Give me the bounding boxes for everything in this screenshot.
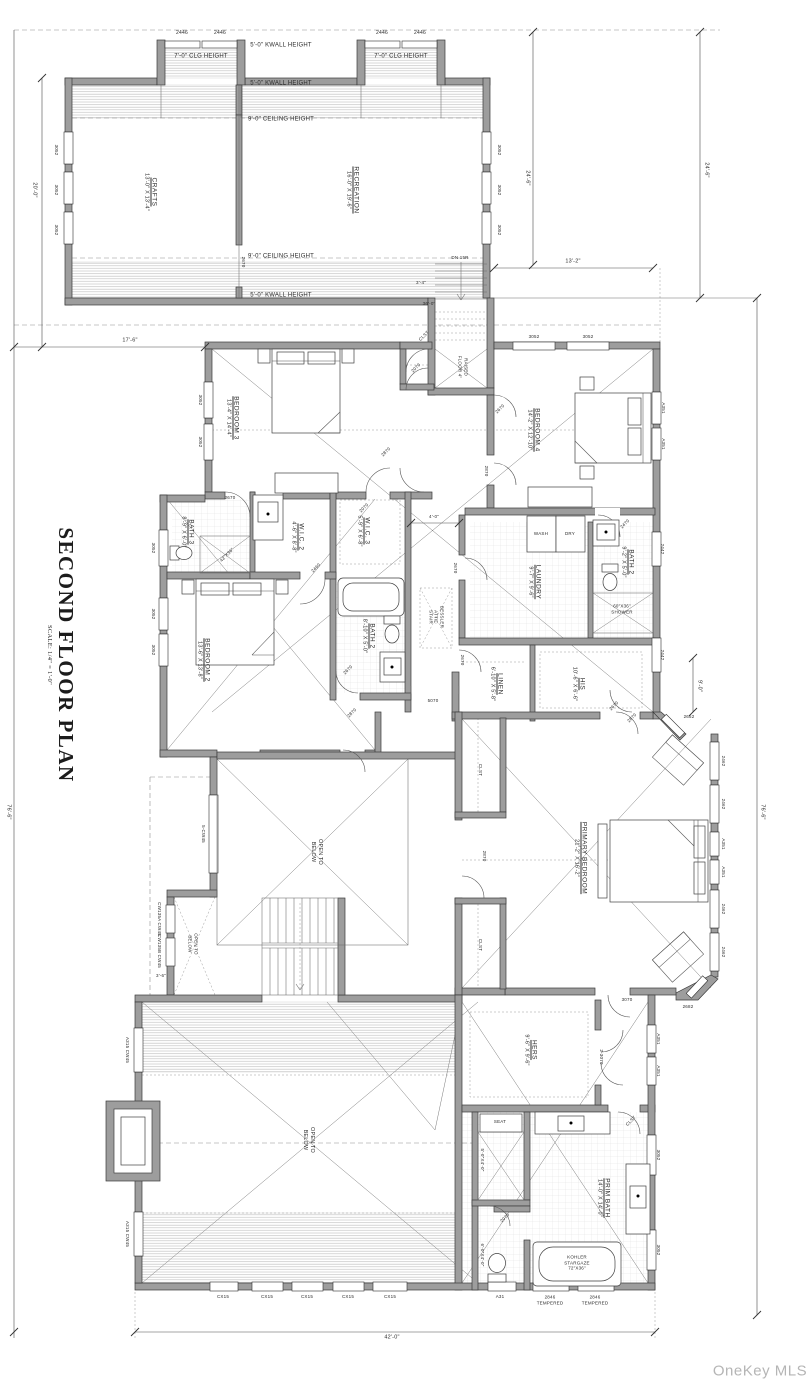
door-label-2670: 2670 [452,563,458,574]
open-to-below-label: OPEN TOBELOW [301,1127,315,1153]
window-label-3052: 3052 [150,543,156,554]
room-name: LINEN [495,667,503,702]
room-dims: 13'-0" X 13'-4" [143,173,150,211]
shower-label-42x36: 42"X36" [219,547,235,563]
window-label-cw135a: CW135A CW45 [156,902,162,936]
door-label-2870: 2870 [483,466,489,477]
window-label-a351: A351 [655,1065,661,1076]
room-name: BEDROOM 3 [231,396,239,440]
window-label-3052: 3052 [496,225,502,236]
room-name: BATH 2 [367,619,375,654]
dim-label-2446: 2446 [414,30,426,36]
second-floor-plan: SECOND FLOOR PLAN SCALE: 1/4" = 1'-0" On… [0,0,808,1392]
window-label-2462: 2462 [720,904,726,915]
window-label-2682: 2682 [683,1004,694,1010]
raised-line: RAISED [463,356,469,378]
room-dims: 8'-10" X 5'-0" [361,619,368,654]
opening-label-5070: 5070 [428,698,439,704]
dim-label-2446: 2446 [214,30,226,36]
room-label-bedroom-2: BEDROOM 213'-6" X 13'-8" [196,638,211,682]
dim-label-4-0: 4'-0" [429,514,439,520]
height-label-clg: 7'-0" CLG HEIGHT [174,53,228,61]
washer-label: WASH [534,531,548,537]
tub-label-kohler: KOHLERSTARGAZE72"X36" [564,1255,590,1272]
dim-label-76-6-left: 76'-6" [5,804,12,819]
room-name: W.I.C. 2 [296,521,304,552]
window-label-2846-tempered: 2846TEMPERED [582,1294,609,1305]
window-label-a351: A351 [720,866,726,877]
room-dims: 16'-0" X 19'-6" [345,166,352,213]
window-label-3052: 3052 [53,145,59,156]
open-line: OPEN TO [316,839,323,865]
dim-label-2446: 2446 [376,30,388,36]
dim-label-13-2: 13'-2" [565,259,580,266]
window-label-2442: 2442 [659,544,665,555]
dim-label-24-6: 24'-6" [703,162,710,177]
window-label-a31: A31 [496,1294,505,1300]
room-dims: 9'-6" X 9'-6" [523,1034,530,1065]
watermark: OneKey MLS [713,1363,807,1382]
room-label-bedroom-3: BEDROOM 313'-4" X 14'-4" [225,396,240,440]
door-label-2670: 2670 [608,700,620,712]
window-label-3052: 3052 [496,185,502,196]
room-dims: 13'-4" X 14'-4" [225,396,232,440]
dryer-label: DRY [565,531,575,537]
dim-label-24-6: 24'-6" [524,170,531,185]
window-label-2442: 2442 [659,650,665,661]
room-label-crafts: CRAFTS13'-0" X 13'-4" [143,173,158,211]
door-label-3070: 3070 [622,997,633,1003]
dim-label-76-6-right: 76'-6" [759,804,766,819]
seat-label: SEAT [494,1119,506,1125]
scale-note: SCALE: 1/4" = 1'-0" [45,527,53,782]
window-label-cx15: CX15 [342,1294,354,1300]
attic-stair-label: BESSLERATTICSTAIR [428,606,445,628]
window-label-cx15: CX15 [384,1294,396,1300]
page-title: SECOND FLOOR PLAN [53,527,79,782]
door-label-2870: 2870 [626,712,638,724]
dim-label-3-6: 3'-6" [156,973,166,979]
height-label-kwall: 5'-0" KWALL HEIGHT [250,80,311,88]
room-label-bath-2-middle: BATH 28'-10" X 5'-0" [361,619,376,654]
open-line: BELOW [301,1127,308,1153]
room-name: BATH 2 [626,546,634,577]
room-dims: 6'-10" X 5'-8" [489,667,496,702]
door-label-2670: 2670 [225,495,236,501]
room-dims: 9'-7" X 9'-6" [527,565,534,599]
open-to-below-label: OPEN TOBELOW [309,839,323,865]
window-label-a351: A351 [660,402,666,413]
room-dims: 14'-0" X 14'-0" [596,1178,603,1217]
open-line: OPEN TO [193,933,199,955]
room-name: BEDROOM 4 [532,408,540,452]
window-label-5cw45: 5-CW45 [200,825,206,843]
room-dims: 10'-6" X 6'-6" [571,667,578,702]
window-label-2846-tempered: 2846TEMPERED [537,1294,564,1305]
room-dims: 21'-2" X 16'-2" [573,822,580,894]
window-label-2462: 2462 [720,756,726,767]
tub-line: KOHLER [564,1255,590,1261]
closet-label: CLST [477,939,483,951]
open-line: BELOW [309,839,316,865]
dim-label-2446: 2446 [176,30,188,36]
door-label-2670: 2670 [494,403,506,415]
room-dims: 4'-6" X 8'-8" [290,521,297,552]
room-name: CRAFTS [149,173,157,211]
dim-label-9-0: 9'-0" [696,680,703,692]
room-label-recreation: RECREATION16'-0" X 19'-6" [345,166,360,213]
closet-label: CLST [625,1115,638,1128]
window-label-3052: 3052 [53,185,59,196]
raised-floor-label: RAISEDFLOOR 4" [457,356,468,378]
dim-label-3-4: 3'-4" [416,280,426,286]
open-line: OPEN TO [308,1127,315,1153]
window-label-2652: 2652 [684,714,695,720]
title-block: SECOND FLOOR PLAN SCALE: 1/4" = 1'-0" [45,527,79,782]
height-label-ceiling: 9'-0" CEILING HEIGHT [248,253,314,261]
shower-word: SHOWER [611,609,632,615]
room-name: HIS [577,667,585,702]
closet-label: CLST [477,764,483,776]
door-label-2870: 2870 [481,851,487,862]
door-label-2670: 2670 [342,664,354,676]
height-label-ceiling: 9'-0" CEILING HEIGHT [248,116,314,124]
room-name: BEDROOM 2 [202,638,210,682]
window-label-cx15: CX15 [301,1294,313,1300]
window-label-a351: A351 [720,838,726,849]
window-label-3052: 3052 [150,645,156,656]
room-label-wic-2: W.I.C. 24'-6" X 8'-8" [290,521,305,552]
closet-label: CLST [418,330,431,343]
tempered-note: TEMPERED [537,1300,564,1306]
door-label-2870: 2870 [346,707,358,719]
room-dims: 14'-2" X 12'-10" [526,408,533,452]
open-line: BELOW [187,933,193,955]
window-label-3052: 3052 [150,609,156,620]
shower-label-60x36: 60"X36"SHOWER [611,603,632,614]
window-label-a315: A315 CW45 [124,1037,130,1063]
dim-label-20-0: 20'-0" [31,182,38,197]
stairs-dn-label: DN 15R [451,255,468,261]
room-name: PRIMARY BEDROOM [579,822,587,894]
window-label-3052: 3052 [655,1150,661,1161]
room-label-linen: LINEN6'-10" X 5'-8" [489,667,504,702]
door-label-2870: 2870 [380,446,392,458]
shower-dim: 60"X36" [611,603,632,609]
labels-layer: SECOND FLOOR PLAN SCALE: 1/4" = 1'-0" On… [0,0,808,1392]
room-name: BATH 3 [186,516,194,547]
room-name: HERS [529,1034,537,1065]
door-label-2460: 2460 [310,562,322,574]
attic-line: STAIR [428,606,434,628]
window-label-3052: 3052 [583,334,594,340]
window-label-3052: 3052 [197,395,203,406]
window-label-cx15: CX15 [217,1294,229,1300]
window-label-cw135b: CW135B CW45 [156,934,162,968]
room-dims: 13'-6" X 13'-8" [196,638,203,682]
window-label-2462: 2462 [720,947,726,958]
window-label-a351: A351 [655,1033,661,1044]
room-label-bedroom-4: BEDROOM 414'-2" X 12'-10" [526,408,541,452]
window-label-3052: 3052 [53,225,59,236]
room-label-laundry: LAUNDRY9'-7" X 9'-6" [527,565,542,599]
room-label-bath-3: BATH 38'-9" X 6'-0" [180,516,195,547]
room-label-his-closet: HIS10'-6" X 6'-6" [571,667,586,702]
height-label-kwall: 5'-0" KWALL HEIGHT [250,292,311,300]
room-label-primary-bedroom: PRIMARY BEDROOM21'-2" X 16'-2" [573,822,588,894]
height-label-clg: 7'-0" CLG HEIGHT [374,53,428,61]
room-label-wic-3: W.I.C. 35'-9" X 6'-8" [356,515,371,546]
window-label-a351: A351 [660,438,666,449]
room-label-bath-2-right: BATH 29'-2" X 5'-0" [620,546,635,577]
door-label-2070: 2070 [358,502,370,514]
dim-label-42-0: 42'-0" [384,1335,399,1342]
window-label-a315: A315 CW45 [124,1221,130,1247]
open-to-below-label: OPEN TOBELOW [187,933,198,955]
door-label-2070: 2070 [499,1212,511,1224]
dim-label-17-6: 17'-6" [122,338,137,345]
window-label-3052: 3052 [197,437,203,448]
room-dims: 9'-2" X 5'-0" [620,546,627,577]
room-name: LAUNDRY [533,565,541,599]
room-dims: 8'-9" X 6'-0" [180,516,187,547]
window-label-2462: 2462 [720,799,726,810]
door-label-2670: 2670 [240,257,246,268]
window-label-3052: 3052 [655,1245,661,1256]
tub-line: 72"X36" [564,1266,590,1272]
room-name: W.I.C. 3 [362,515,370,546]
room-name: PRIM BATH [602,1178,610,1217]
attic-line: BESSLER [439,606,445,628]
window-label-3052: 3052 [529,334,540,340]
tempered-note: TEMPERED [582,1300,609,1306]
window-label-cx15: CX15 [261,1294,273,1300]
room-label-hers-closet: HERS9'-6" X 9'-6" [523,1034,538,1065]
dim-label-36-0: 36'-0" [423,301,436,307]
room-label-prim-bath: PRIM BATH14'-0" X 14'-0" [596,1178,611,1217]
door-label-2670: 2670 [459,655,465,666]
water-closet-dim-label: 6'-0"X4'-0" [479,1243,485,1266]
height-label-kwall: 5'-0" KWALL HEIGHT [250,42,311,50]
room-name: RECREATION [351,166,359,213]
door-label-2070: 2070 [410,362,422,374]
window-label-3052: 3052 [496,145,502,156]
door-label-2-3070: 2-3070 [598,1049,604,1064]
seat-shower-dim-label: 5'-0"X4'-0" [479,1148,485,1171]
door-label-2470: 2470 [619,518,631,530]
room-dims: 5'-9" X 6'-8" [356,515,363,546]
raised-line: FLOOR 4" [457,356,463,378]
